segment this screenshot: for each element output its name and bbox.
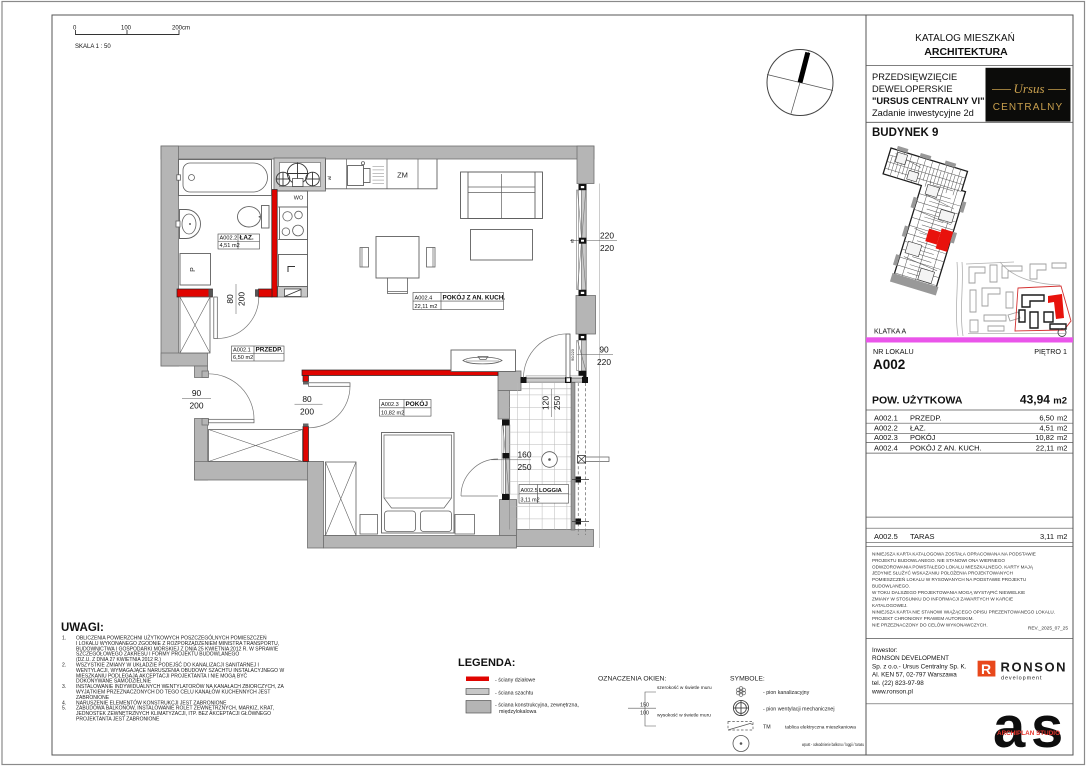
svg-text:4,51 m2: 4,51 m2 xyxy=(220,243,240,249)
svg-text:200cm: 200cm xyxy=(172,26,190,32)
svg-text:PROJEKT CHRONIONY PRAWEM AUTOR: PROJEKT CHRONIONY PRAWEM AUTORSKIM. xyxy=(872,616,974,621)
svg-text:A002.2: A002.2 xyxy=(874,424,898,433)
svg-text:PRZEDP.: PRZEDP. xyxy=(910,414,942,423)
svg-text:BUDOWLANEGO.: BUDOWLANEGO. xyxy=(872,584,910,589)
svg-text:220: 220 xyxy=(600,243,614,253)
svg-text:ŁAZ.: ŁAZ. xyxy=(240,235,254,242)
svg-text:A002.5: A002.5 xyxy=(874,532,898,541)
svg-text:PIĘTRO 1: PIĘTRO 1 xyxy=(1034,347,1067,356)
svg-text:R: R xyxy=(981,661,991,677)
svg-text:UWAGI:: UWAGI: xyxy=(61,622,104,634)
svg-text:KATALOG MIESZKAŃ: KATALOG MIESZKAŃ xyxy=(915,31,1015,44)
svg-text:4,51: 4,51 xyxy=(1039,424,1054,433)
svg-text:m2: m2 xyxy=(1057,414,1067,423)
svg-text:szerokość w świetle muru: szerokość w świetle muru xyxy=(657,685,712,691)
svg-text:ARCHITEKTURA: ARCHITEKTURA xyxy=(924,46,1008,58)
svg-text:wl: wl xyxy=(327,176,332,180)
svg-text:A002: A002 xyxy=(873,357,905,372)
svg-text:- pion wentylacji mechanicznej: - pion wentylacji mechanicznej xyxy=(763,707,835,713)
svg-text:10,82 m2: 10,82 m2 xyxy=(381,410,404,416)
svg-text:PROJEKTANTA JEST ZABRONIONE: PROJEKTANTA JEST ZABRONIONE xyxy=(76,717,160,723)
svg-text:6,50 m2: 6,50 m2 xyxy=(233,355,253,361)
svg-text:międzylokalowa: międzylokalowa xyxy=(499,709,536,715)
svg-text:PROJEKTU BUDOWLANEGO. NIE STAN: PROJEKTU BUDOWLANEGO. NIE STANOWI ONA WI… xyxy=(872,558,1005,563)
svg-text:RONSON: RONSON xyxy=(1001,660,1068,675)
svg-text:CENTRALNY: CENTRALNY xyxy=(993,102,1063,113)
svg-text:OZNACZENIA OKIEN:: OZNACZENIA OKIEN: xyxy=(598,676,666,683)
svg-text:m2: m2 xyxy=(1057,532,1067,541)
svg-text:A002.3: A002.3 xyxy=(381,402,399,408)
svg-text:ODWZOROWANIA POWSTAŁEGO LOKALU: ODWZOROWANIA POWSTAŁEGO LOKALU MIESZKALN… xyxy=(872,564,1034,569)
svg-text:PRZEDSIĘWZIĘCIE: PRZEDSIĘWZIĘCIE xyxy=(872,72,957,82)
svg-text:- pion kanalizacyjny: - pion kanalizacyjny xyxy=(763,690,810,696)
svg-text:A002.5: A002.5 xyxy=(521,488,538,494)
svg-text:43,94 m2: 43,94 m2 xyxy=(1020,393,1067,407)
svg-text:Al. KEN 57, 02-797 Warszawa: Al. KEN 57, 02-797 Warszawa xyxy=(872,672,957,679)
svg-text:Inwestor:: Inwestor: xyxy=(872,647,898,654)
svg-text:ZMIANY W STOSUNKU DO INFORMACJ: ZMIANY W STOSUNKU DO INFORMACJI ZAWARTYC… xyxy=(872,597,1013,602)
svg-text:SKALA 1 : 50: SKALA 1 : 50 xyxy=(75,44,111,50)
svg-text:TM: TM xyxy=(763,725,771,731)
svg-text:a: a xyxy=(993,695,1026,760)
svg-text:120: 120 xyxy=(541,396,551,410)
svg-text:Zadanie inwestycyjne 2d: Zadanie inwestycyjne 2d xyxy=(872,108,974,118)
svg-text:A002.4: A002.4 xyxy=(874,444,898,453)
svg-text:REV._2025_07_25: REV._2025_07_25 xyxy=(1028,626,1068,632)
svg-text:80: 80 xyxy=(225,294,235,304)
svg-text:NR LOKALU: NR LOKALU xyxy=(873,347,914,356)
svg-text:90/220: 90/220 xyxy=(571,349,575,361)
svg-text:3.: 3. xyxy=(62,684,66,690)
svg-text:POKÓJ: POKÓJ xyxy=(406,399,429,408)
svg-text:POKÓJ Z AN. KUCH.: POKÓJ Z AN. KUCH. xyxy=(910,444,982,453)
svg-text:160: 160 xyxy=(518,450,532,460)
svg-text:220: 220 xyxy=(600,231,614,241)
svg-text:NIE PRZEZNACZONY DO CELÓW WYKO: NIE PRZEZNACZONY DO CELÓW WYKONAWCZYCH. xyxy=(872,622,988,628)
svg-text:1.: 1. xyxy=(62,636,66,642)
svg-text:KATALOGOWEJ.: KATALOGOWEJ. xyxy=(872,603,908,608)
svg-text:LEGENDA:: LEGENDA: xyxy=(458,657,515,669)
svg-text:220: 220 xyxy=(597,357,611,367)
svg-text:100: 100 xyxy=(121,26,132,32)
svg-text:KLATKA A: KLATKA A xyxy=(874,329,906,336)
svg-text:Sp. z o.o.- Ursus Centralny Sp: Sp. z o.o.- Ursus Centralny Sp. K. xyxy=(872,663,967,670)
svg-text:BUDYNEK 9: BUDYNEK 9 xyxy=(872,127,938,139)
svg-text:PRZEDP.: PRZEDP. xyxy=(256,347,283,354)
svg-text:200: 200 xyxy=(237,292,247,306)
svg-text:ZM: ZM xyxy=(397,171,408,180)
svg-text:DEWELOPERSKIE: DEWELOPERSKIE xyxy=(872,84,953,94)
svg-text:90: 90 xyxy=(192,388,202,398)
svg-text:3,11: 3,11 xyxy=(1040,532,1054,541)
svg-text:250: 250 xyxy=(518,462,532,472)
svg-text:6,50: 6,50 xyxy=(1039,414,1054,423)
svg-text:wysokość w świetle muru: wysokość w świetle muru xyxy=(657,713,711,719)
svg-text:200: 200 xyxy=(190,401,204,411)
svg-text:WO: WO xyxy=(294,196,304,202)
svg-text:s: s xyxy=(1031,695,1063,760)
svg-text:5.: 5. xyxy=(62,706,66,712)
svg-text:P: P xyxy=(190,267,197,272)
svg-text:m2: m2 xyxy=(1057,433,1067,442)
svg-text:NINIEJSZA KARTA KATALOGOWA ZOS: NINIEJSZA KARTA KATALOGOWA ZOSTAŁA OPRAC… xyxy=(872,551,1036,556)
svg-text:200: 200 xyxy=(300,407,314,417)
svg-text:A002.1: A002.1 xyxy=(233,348,251,354)
svg-text:POW. UŻYTKOWA: POW. UŻYTKOWA xyxy=(872,394,963,407)
svg-text:ARCHIPLAN STUDIO: ARCHIPLAN STUDIO xyxy=(997,731,1060,737)
svg-text:- ściana konstrukcyjna, zewnęt: - ściana konstrukcyjna, zewnętrzna, xyxy=(495,703,579,709)
svg-text:tel. (22) 823-97-98: tel. (22) 823-97-98 xyxy=(872,680,924,687)
svg-text:TARAS: TARAS xyxy=(910,532,934,541)
svg-text:Ursus: Ursus xyxy=(1013,81,1044,96)
svg-text:10,82: 10,82 xyxy=(1035,433,1054,442)
svg-text:80: 80 xyxy=(302,394,312,404)
svg-text:POMIESZCZEŃ LOKALU W RYSOWANYC: POMIESZCZEŃ LOKALU W RYSOWANYCH NA PODST… xyxy=(872,576,1026,582)
svg-text:A002.2: A002.2 xyxy=(220,236,238,242)
svg-text:development: development xyxy=(1001,676,1042,682)
svg-text:100: 100 xyxy=(640,711,649,717)
svg-text:m2: m2 xyxy=(1057,424,1067,433)
svg-text:150: 150 xyxy=(640,703,649,709)
svg-text:- ściana szachtu: - ściana szachtu xyxy=(495,691,533,697)
svg-text:ŁAZ.: ŁAZ. xyxy=(910,424,926,433)
svg-text:"URSUS CENTRALNY VI": "URSUS CENTRALNY VI" xyxy=(872,96,984,106)
svg-text:POKÓJ: POKÓJ xyxy=(910,433,936,442)
svg-text:A002.3: A002.3 xyxy=(874,433,898,442)
svg-text:www.ronson.pl: www.ronson.pl xyxy=(871,688,913,695)
svg-text:250: 250 xyxy=(552,396,562,410)
svg-text:m2: m2 xyxy=(1057,444,1067,453)
svg-text:22,11: 22,11 xyxy=(1036,444,1054,453)
svg-text:3,11 m2: 3,11 m2 xyxy=(521,497,540,503)
svg-text:POKÓJ Z AN. KUCH.: POKÓJ Z AN. KUCH. xyxy=(443,292,506,301)
svg-text:22,11 m2: 22,11 m2 xyxy=(415,304,438,310)
svg-text:SYMBOLE:: SYMBOLE: xyxy=(730,676,765,683)
svg-text:W TOKU DALSZEGO PROJEKTOWANIA: W TOKU DALSZEGO PROJEKTOWANIA MOGĄ WYSTĄ… xyxy=(872,589,1025,595)
svg-text:tablica elektryczna mieszkanio: tablica elektryczna mieszkaniowa xyxy=(785,725,856,731)
svg-text:A002.1: A002.1 xyxy=(874,414,898,423)
svg-text:90: 90 xyxy=(599,344,609,354)
svg-text:2.: 2. xyxy=(62,663,66,669)
svg-text:- ściany działowe: - ściany działowe xyxy=(495,678,535,684)
svg-text:JEDYNIE SŁUŻYĆ WSKAZANIU POŁOŻ: JEDYNIE SŁUŻYĆ WSKAZANIU POŁOŻENIA PROJE… xyxy=(872,570,1013,576)
svg-text:LOGGIA: LOGGIA xyxy=(539,488,563,494)
svg-text:NINIEJSZA KARTA NIE STANOWI WI: NINIEJSZA KARTA NIE STANOWI WIĄŻĄCEGO OP… xyxy=(872,609,1055,615)
svg-text:wpust - odwodnienie balkonu /: wpust - odwodnienie balkonu / loggii / t… xyxy=(802,742,864,747)
svg-text:A002.4: A002.4 xyxy=(415,295,433,301)
svg-text:85: 85 xyxy=(571,239,575,243)
svg-text:RONSON DEVELOPMENT: RONSON DEVELOPMENT xyxy=(872,655,949,662)
